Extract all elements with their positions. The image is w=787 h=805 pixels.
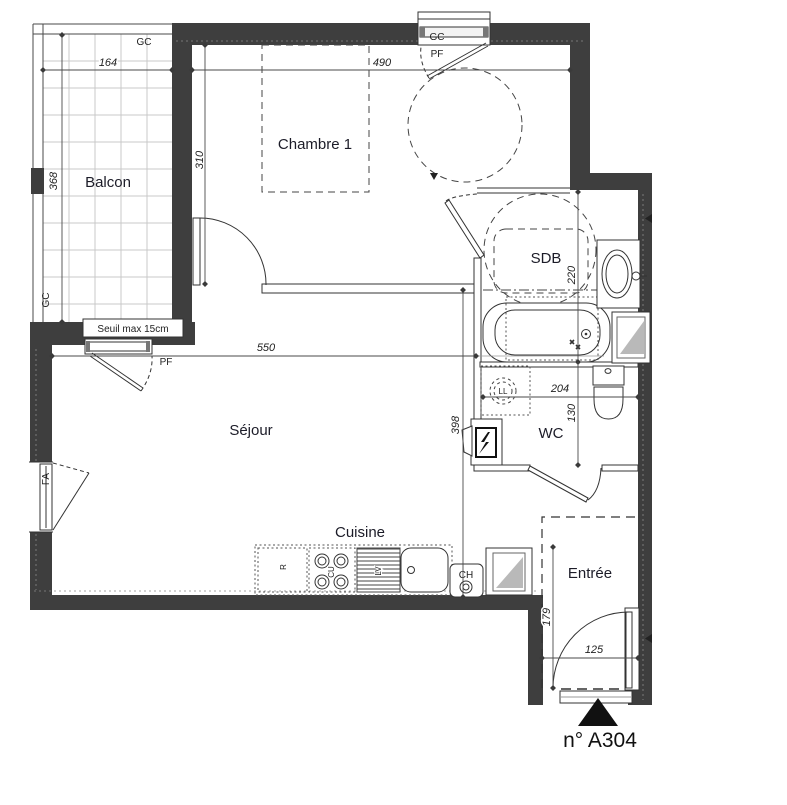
toilet — [593, 366, 624, 419]
pf-label-window-top: PF — [431, 49, 444, 60]
gc-label-balcony-side: GC — [41, 293, 52, 308]
svg-text:179: 179 — [541, 608, 553, 626]
room-label-sdb: SDB — [531, 250, 562, 267]
kitchen-sink — [401, 548, 448, 592]
gc-label-window-top: GC — [430, 32, 445, 43]
dishwasher: LV — [357, 548, 400, 592]
washbasin — [597, 240, 647, 308]
shower-screen — [612, 312, 650, 363]
svg-text:204: 204 — [550, 383, 569, 395]
wall-sdb-top-step — [570, 173, 652, 190]
floorplan-page: Balcon GC GC GC PF — [0, 0, 787, 800]
wall-chambre-right — [570, 23, 590, 173]
basin-tap — [632, 272, 640, 280]
washing-machine-label: LL — [499, 387, 508, 396]
wall-chambre-bottom — [262, 284, 480, 293]
room-label-wc: WC — [539, 425, 564, 442]
svg-text:125: 125 — [585, 644, 604, 656]
fa-label: FA — [41, 473, 52, 486]
svg-text:220: 220 — [566, 265, 578, 285]
boiler: CH — [450, 564, 483, 597]
background — [0, 0, 787, 800]
svg-text:398: 398 — [450, 415, 462, 434]
pf-label-sejour: PF — [160, 357, 173, 368]
svg-text:130: 130 — [566, 403, 578, 422]
svg-text:164: 164 — [99, 57, 117, 69]
unit-number: n° A304 — [563, 729, 637, 752]
svg-text:368: 368 — [48, 171, 60, 190]
gc-label-balcony-top: GC — [137, 37, 152, 48]
room-label-chambre: Chambre 1 — [278, 136, 352, 153]
wall-top — [172, 23, 590, 45]
wall-wc-bottom-left — [474, 465, 530, 471]
wall-chambre-left — [172, 45, 192, 322]
room-label-sejour: Séjour — [229, 422, 272, 439]
svg-text:310: 310 — [194, 150, 206, 169]
dishwasher-label: LV — [374, 566, 383, 576]
room-label-entree: Entrée — [568, 565, 612, 582]
chambre-door-leaf — [193, 218, 200, 285]
balcony-divider-panel — [31, 168, 44, 194]
boiler-label: CH — [459, 570, 473, 581]
sill-note: Seuil max 15cm — [97, 324, 168, 335]
svg-text:490: 490 — [373, 57, 392, 69]
wall-wc-bottom-right — [602, 465, 638, 471]
svg-text:550: 550 — [257, 342, 276, 354]
entry-door-leaf — [626, 612, 632, 688]
floorplan-a304: Balcon GC GC GC PF — [0, 0, 787, 800]
room-label-cuisine: Cuisine — [335, 524, 385, 541]
room-label-balcon: Balcon — [85, 174, 131, 191]
hob-label: CU — [327, 566, 336, 578]
bathtub — [483, 297, 610, 362]
fridge-label: R — [279, 564, 288, 570]
glazed-panel — [486, 548, 532, 595]
